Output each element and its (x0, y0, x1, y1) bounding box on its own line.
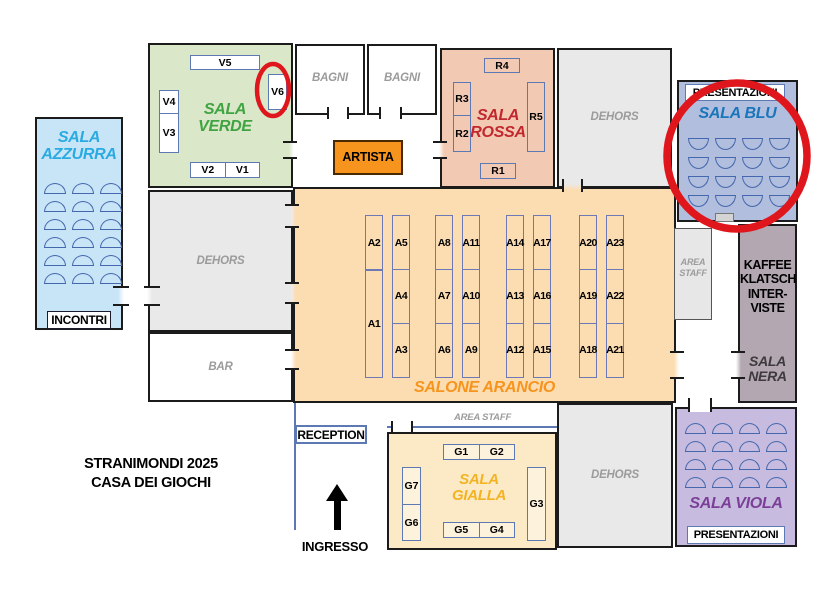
seat-icon (766, 441, 787, 452)
seat-icon (769, 195, 790, 207)
bagni-left-label: BAGNI (297, 72, 363, 84)
seat-icon (100, 273, 122, 284)
seat-icon (739, 459, 760, 470)
sala-blu-door-notch (715, 213, 734, 222)
seat-icon (739, 441, 760, 452)
door-tick (285, 302, 299, 304)
seat-icon (712, 441, 733, 452)
room-sala-viola: SALA VIOLA PRESENTAZIONI (675, 407, 797, 547)
bar-label: BAR (150, 361, 291, 373)
seat-icon (715, 195, 736, 207)
salone-table-column: A11A10A9 (462, 215, 480, 378)
table-g1-g2: G1 G2 (443, 444, 515, 460)
door-tick (433, 157, 447, 159)
door-tick (433, 141, 447, 143)
salone-table-columns: A2A1A5A4A3A8A7A6A11A10A9A14A13A12A17A16A… (295, 189, 674, 401)
door-tick (670, 351, 684, 353)
seat-icon (742, 138, 763, 150)
door-opening (329, 112, 347, 117)
door-tick (113, 286, 129, 288)
door-tick (283, 157, 297, 159)
room-sala-azzurra: SALA AZZURRA INCONTRI (35, 117, 123, 330)
table-a7: A7 (435, 269, 453, 324)
table-a10: A10 (462, 269, 480, 324)
seat-icon (72, 183, 94, 194)
seat-icon (766, 477, 787, 488)
kaffeeklatsch-label: VISTE (740, 301, 795, 315)
table-a2: A2 (365, 215, 383, 271)
door-tick (327, 107, 329, 119)
door-tick (144, 286, 160, 288)
artista-label: ARTISTA (335, 151, 401, 164)
table-a18: A18 (579, 323, 597, 378)
door-tick (285, 349, 299, 351)
seat-icon (44, 201, 66, 212)
sala-verde-title: VERDE (175, 119, 275, 136)
door-opening (291, 351, 296, 368)
sala-blu-title: SALA BLU (679, 106, 796, 123)
seat-icon (100, 237, 122, 248)
seat-icon (688, 138, 709, 150)
salone-table-column: A2A1 (365, 215, 383, 378)
door-tick (285, 282, 299, 284)
table-v3: V3 (159, 113, 179, 153)
seat-icon (688, 195, 709, 207)
room-area-staff-right: AREA STAFF (674, 228, 712, 320)
door-opening (381, 112, 400, 117)
table-r1: R1 (480, 163, 516, 179)
seat-icon (769, 176, 790, 188)
seat-icon (685, 441, 706, 452)
seat-icon (100, 219, 122, 230)
dehors-bottom-label: DEHORS (559, 469, 671, 481)
seat-icon (766, 459, 787, 470)
sala-azzurra-title: AZZURRA (37, 147, 121, 164)
sala-blu-seats (688, 138, 790, 207)
room-bagni-right: BAGNI (367, 44, 437, 115)
seat-icon (742, 176, 763, 188)
seat-icon (742, 195, 763, 207)
table-v2-v1: V2 V1 (190, 162, 260, 178)
seat-icon (688, 176, 709, 188)
seat-icon (685, 459, 706, 470)
table-g6: G6 (402, 504, 421, 541)
door-tick (731, 377, 745, 379)
corridor-wall (294, 403, 296, 530)
presentazioni-badge-viola: PRESENTAZIONI (687, 526, 785, 544)
seat-icon (715, 138, 736, 150)
door-opening (118, 288, 124, 305)
table-a6: A6 (435, 323, 453, 378)
table-v2: V2 (191, 163, 225, 177)
door-tick (581, 179, 583, 192)
area-staff-right-label: STAFF (675, 268, 711, 279)
sala-viola-title: SALA VIOLA (677, 496, 795, 513)
seat-icon (44, 237, 66, 248)
door-tick (347, 107, 349, 119)
sala-verde-title: SALA (175, 102, 275, 119)
table-g7: G7 (402, 467, 421, 505)
kaffeeklatsch-label: KAFFEE (740, 258, 795, 272)
door-tick (144, 304, 160, 306)
table-g2: G2 (479, 445, 515, 459)
door-tick (391, 421, 393, 433)
door-opening (674, 353, 679, 377)
door-opening (564, 184, 581, 190)
table-a12: A12 (506, 323, 524, 378)
seat-icon (685, 477, 706, 488)
salone-arancio-title: SALONE ARANCIO (295, 380, 674, 397)
door-tick (113, 304, 129, 306)
door-opening (439, 143, 444, 157)
table-a17: A17 (533, 215, 551, 270)
area-staff-wall (412, 426, 557, 428)
table-a15: A15 (533, 323, 551, 378)
room-bagni-left: BAGNI (295, 44, 365, 115)
salone-table-column: A8A7A6 (435, 215, 453, 378)
reception-badge: RECEPTION (295, 425, 367, 444)
seat-icon (72, 237, 94, 248)
seat-icon (739, 477, 760, 488)
table-a5: A5 (392, 215, 410, 270)
seat-icon (685, 423, 706, 434)
room-kaffeeklatsch-sala-nera: KAFFEE KLATSCH INTER- VISTE SALA NERA (738, 224, 797, 403)
room-sala-verde: SALA VERDE V5 V4 V3 V6 V2 V1 (148, 43, 293, 188)
dehors-top-label: DEHORS (559, 111, 670, 123)
table-g5: G5 (444, 523, 479, 537)
entrance-arrow-icon (334, 499, 341, 530)
door-tick (285, 368, 299, 370)
event-title-line1: STRANIMONDI 2025 (56, 455, 246, 474)
sala-azzurra-seats (44, 183, 122, 284)
table-a4: A4 (392, 269, 410, 324)
room-bar: BAR (148, 332, 293, 402)
table-a9: A9 (462, 323, 480, 378)
room-artista: ARTISTA (333, 140, 403, 175)
seat-icon (712, 477, 733, 488)
salone-table-column: A17A16A15 (533, 215, 551, 378)
seat-icon (44, 255, 66, 266)
table-v1: V1 (225, 163, 260, 177)
salone-table-column: A20A19A18 (579, 215, 597, 378)
room-dehors-top: DEHORS (557, 48, 672, 188)
seat-icon (688, 157, 709, 169)
table-r3: R3 (453, 82, 471, 116)
seat-icon (100, 255, 122, 266)
door-tick (283, 141, 297, 143)
kaffeeklatsch-label: INTER- (740, 287, 795, 301)
seat-icon (72, 255, 94, 266)
table-a20: A20 (579, 215, 597, 270)
door-tick (688, 398, 690, 412)
door-opening (291, 284, 296, 302)
event-title-line2: CASA DEI GIOCHI (56, 474, 246, 493)
room-dehors-left: DEHORS (148, 190, 293, 332)
seat-icon (44, 273, 66, 284)
seat-icon (769, 138, 790, 150)
seat-icon (742, 157, 763, 169)
seat-icon (72, 201, 94, 212)
table-r5: R5 (527, 82, 545, 152)
door-tick (379, 107, 381, 119)
seat-icon (712, 459, 733, 470)
room-sala-gialla: SALA GIALLA G1 G2 G7 G6 G3 G5 G4 (387, 432, 557, 550)
table-a14: A14 (506, 215, 524, 270)
table-v4: V4 (159, 90, 179, 114)
door-tick (411, 421, 413, 433)
room-sala-blu: PRESENTAZIONI SALA BLU (677, 80, 798, 222)
table-a16: A16 (533, 269, 551, 324)
room-dehors-bottom: DEHORS (557, 403, 673, 548)
table-r4: R4 (484, 58, 520, 73)
sala-nera-title: SALA (740, 354, 795, 369)
door-opening (736, 353, 741, 377)
seat-icon (100, 201, 122, 212)
table-g1: G1 (444, 445, 479, 459)
table-a3: A3 (392, 323, 410, 378)
door-tick (670, 377, 684, 379)
door-opening (289, 143, 294, 157)
seat-icon (72, 219, 94, 230)
door-tick (710, 398, 712, 412)
door-opening (147, 288, 152, 305)
floor-plan-map: SALA AZZURRA INCONTRI SALA VERDE V5 V4 V… (0, 0, 839, 595)
room-sala-rossa: SALA ROSSA R4 R3 R2 R5 R1 (440, 48, 555, 188)
door-tick (285, 204, 299, 206)
sala-viola-seats (685, 423, 787, 488)
door-opening (291, 206, 296, 226)
table-a21: A21 (606, 323, 624, 378)
table-a19: A19 (579, 269, 597, 324)
seat-icon (72, 273, 94, 284)
table-g3: G3 (527, 467, 546, 541)
door-tick (562, 179, 564, 192)
ingresso-label: INGRESSO (295, 539, 375, 554)
table-a1: A1 (365, 269, 383, 378)
salone-table-column: A5A4A3 (392, 215, 410, 378)
seat-icon (712, 423, 733, 434)
room-salone-arancio: A2A1A5A4A3A8A7A6A11A10A9A14A13A12A17A16A… (293, 187, 676, 403)
presentazioni-badge-blu: PRESENTAZIONI (685, 84, 785, 101)
seat-icon (766, 423, 787, 434)
door-tick (285, 226, 299, 228)
salone-table-column: A23A22A21 (606, 215, 624, 378)
table-g4: G4 (479, 523, 515, 537)
incontri-badge: INCONTRI (47, 311, 111, 329)
kaffeeklatsch-label: KLATSCH (740, 272, 795, 286)
area-staff-right-label: AREA (675, 257, 711, 268)
table-a8: A8 (435, 215, 453, 270)
seat-icon (715, 157, 736, 169)
table-a23: A23 (606, 215, 624, 270)
sala-nera-title: NERA (740, 369, 795, 384)
area-staff-bottom-label: AREA STAFF (420, 412, 545, 423)
seat-icon (739, 423, 760, 434)
door-tick (400, 107, 402, 119)
table-v5: V5 (190, 55, 260, 70)
bagni-right-label: BAGNI (369, 72, 435, 84)
sala-azzurra-title: SALA (37, 130, 121, 147)
seat-icon (715, 176, 736, 188)
table-r2: R2 (453, 115, 471, 152)
dehors-left-label: DEHORS (150, 255, 291, 267)
table-g5-g4: G5 G4 (443, 522, 515, 538)
salone-table-column: A14A13A12 (506, 215, 524, 378)
door-tick (731, 351, 745, 353)
table-a22: A22 (606, 269, 624, 324)
table-a13: A13 (506, 269, 524, 324)
door-opening (690, 404, 710, 412)
seat-icon (100, 183, 122, 194)
seat-icon (769, 157, 790, 169)
seat-icon (44, 219, 66, 230)
table-a11: A11 (462, 215, 480, 270)
table-v6: V6 (268, 74, 287, 110)
seat-icon (44, 183, 66, 194)
